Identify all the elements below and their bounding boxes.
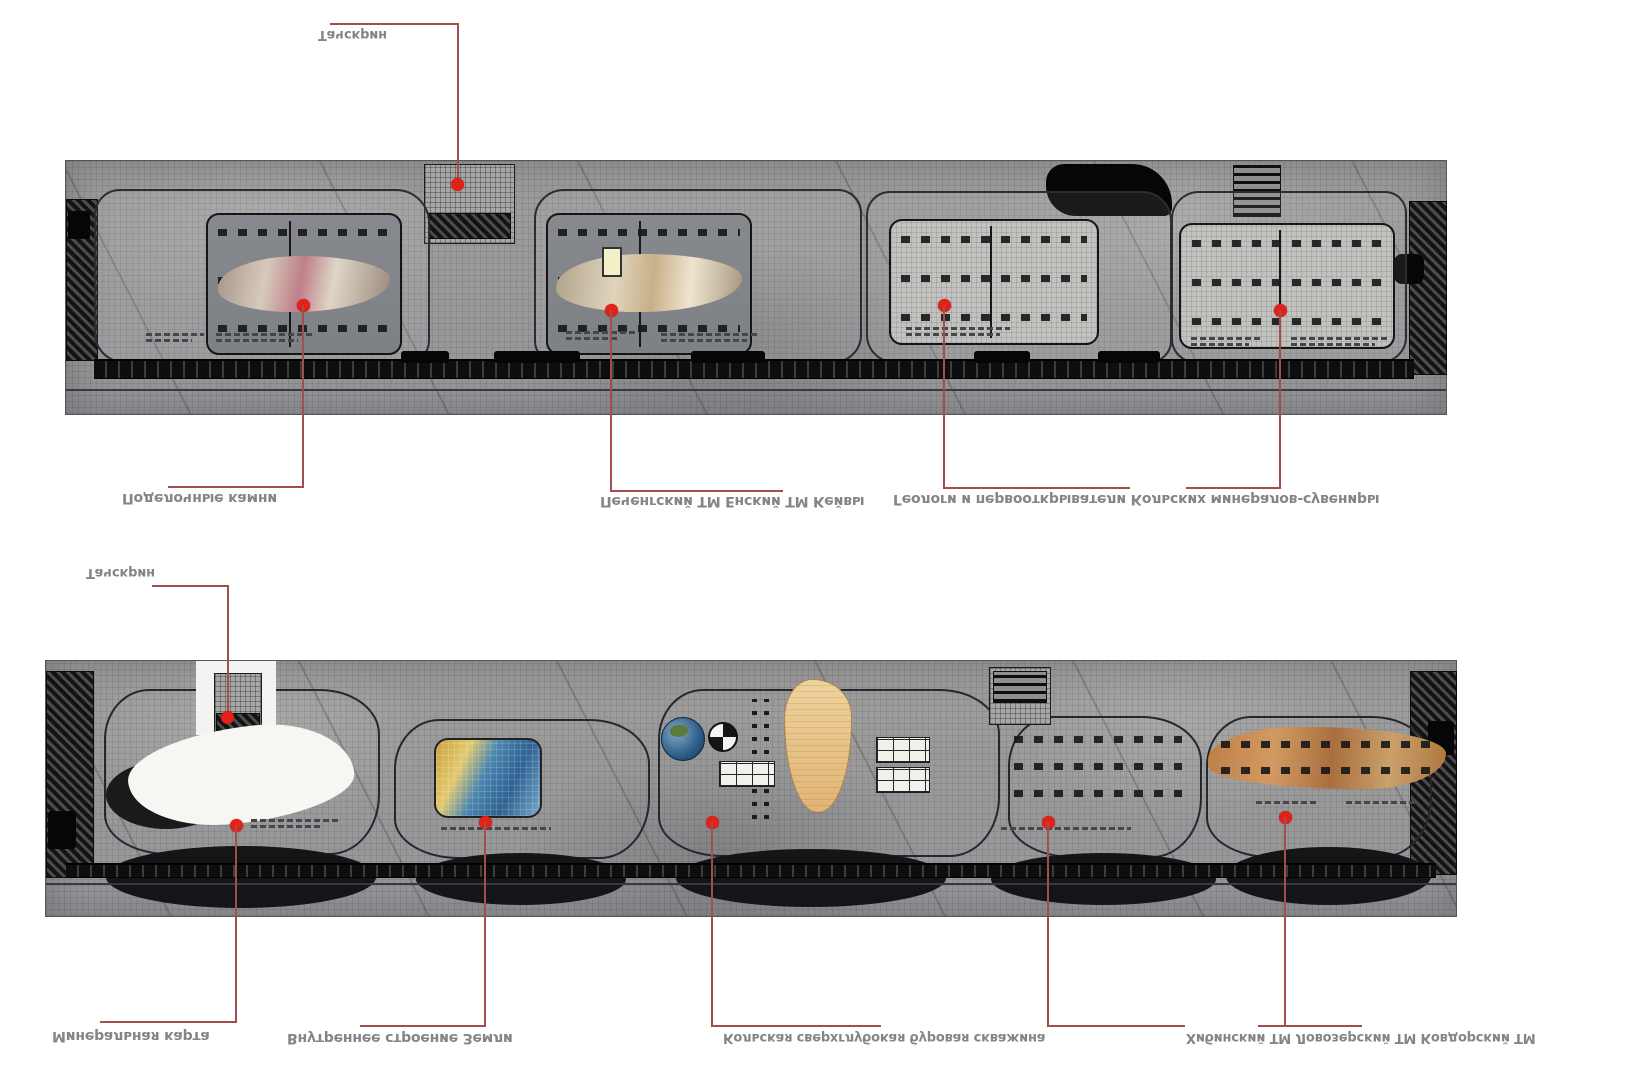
leader-line: [1258, 1025, 1362, 1027]
leader-line: [711, 1025, 881, 1027]
label-zones-4-5: Хибинский ТМ Ловозерский ТМ Ковдорский Т…: [1186, 1030, 1535, 1045]
label-hall-2: Печенгский ТМ Енский ТМ Кейвы: [600, 493, 864, 509]
room-caption-smudge: [1291, 337, 1389, 347]
top-floorplan-strip: [65, 160, 1447, 415]
display-tables: [876, 767, 930, 793]
leader-line: [235, 825, 237, 1021]
seat-dots: [764, 699, 769, 819]
leader-line: [457, 23, 459, 185]
stairs-steps: [993, 671, 1047, 703]
room-caption-smudge: [566, 331, 636, 341]
floor-plan-sheet: Тачскрин Поделочные камни Печенгский ТМ …: [0, 0, 1626, 1080]
south-wall: [66, 863, 1436, 878]
hall-4-exhibit-area: [1179, 223, 1395, 349]
room-caption-smudge: [441, 827, 551, 837]
mineral-showcase: [556, 254, 742, 312]
door-unit: [494, 351, 580, 363]
shaft-left: [68, 211, 90, 239]
leader-line: [1047, 822, 1049, 1025]
door-unit: [401, 351, 449, 363]
leader-line: [227, 585, 229, 715]
rock-wall: [991, 853, 1216, 905]
marker-touchscreen-top: [451, 178, 464, 191]
leader-line: [330, 23, 459, 25]
leader-line: [1284, 817, 1286, 1025]
survey-point-icon: [708, 722, 738, 752]
door-unit: [691, 351, 765, 363]
leader-line: [360, 1025, 486, 1027]
leader-line: [610, 490, 783, 492]
highlight-case: [602, 247, 622, 277]
label-zone-1: Минеральная карта: [52, 1028, 210, 1044]
display-tables: [719, 761, 775, 787]
room-caption-smudge: [1256, 801, 1316, 811]
ore-massif-exhibit: [1208, 727, 1446, 789]
lower-wall-line: [46, 883, 1456, 885]
earth-structure-exhibit: [434, 738, 542, 818]
leader-line: [711, 822, 713, 1025]
leader-line: [302, 305, 304, 487]
globe-icon: [661, 717, 705, 761]
label-touchscreen-bottom: Тачскрин: [86, 565, 155, 580]
stair-core-right-icon: [1409, 201, 1447, 375]
shaft-left: [48, 811, 76, 849]
touchscreen-console: [428, 213, 511, 239]
leader-line: [484, 822, 486, 1025]
door-unit: [1098, 351, 1160, 363]
label-hall-1: Поделочные камни: [122, 490, 277, 506]
bottom-floorplan-strip: [45, 660, 1457, 917]
leader-line: [168, 486, 304, 488]
display-tables: [876, 737, 930, 763]
room-caption-smudge: [1001, 827, 1131, 837]
lower-wall-line: [66, 389, 1446, 391]
leader-line: [1047, 1025, 1185, 1027]
room-caption-smudge: [661, 333, 759, 343]
room-caption-smudge: [146, 333, 204, 343]
leader-line: [943, 487, 1130, 489]
room-caption-smudge: [1346, 801, 1416, 811]
room-caption-smudge: [216, 333, 312, 343]
label-touchscreen-top: Тачскрин: [318, 27, 387, 42]
room-caption-smudge: [1191, 337, 1263, 347]
rock-wall: [676, 849, 946, 907]
label-zone-3: Кольская сверхглубокая буровая скважина: [723, 1030, 1045, 1045]
room-caption-smudge: [906, 327, 1010, 337]
leader-line: [1186, 487, 1281, 489]
door-unit: [974, 351, 1030, 363]
leader-line: [1279, 310, 1281, 488]
label-halls-3-4: Геологи и первооткрыватели Кольских мине…: [893, 491, 1379, 507]
seat-dots: [752, 699, 757, 819]
rock-wall: [416, 853, 626, 905]
room-caption-smudge: [251, 819, 341, 829]
leader-line: [152, 585, 228, 587]
leader-line: [943, 305, 945, 488]
label-zone-2: Внутреннее строение Земли: [287, 1030, 513, 1046]
leader-line: [100, 1021, 237, 1023]
marker-touchscreen-bottom: [221, 711, 234, 724]
leader-line: [610, 310, 612, 491]
